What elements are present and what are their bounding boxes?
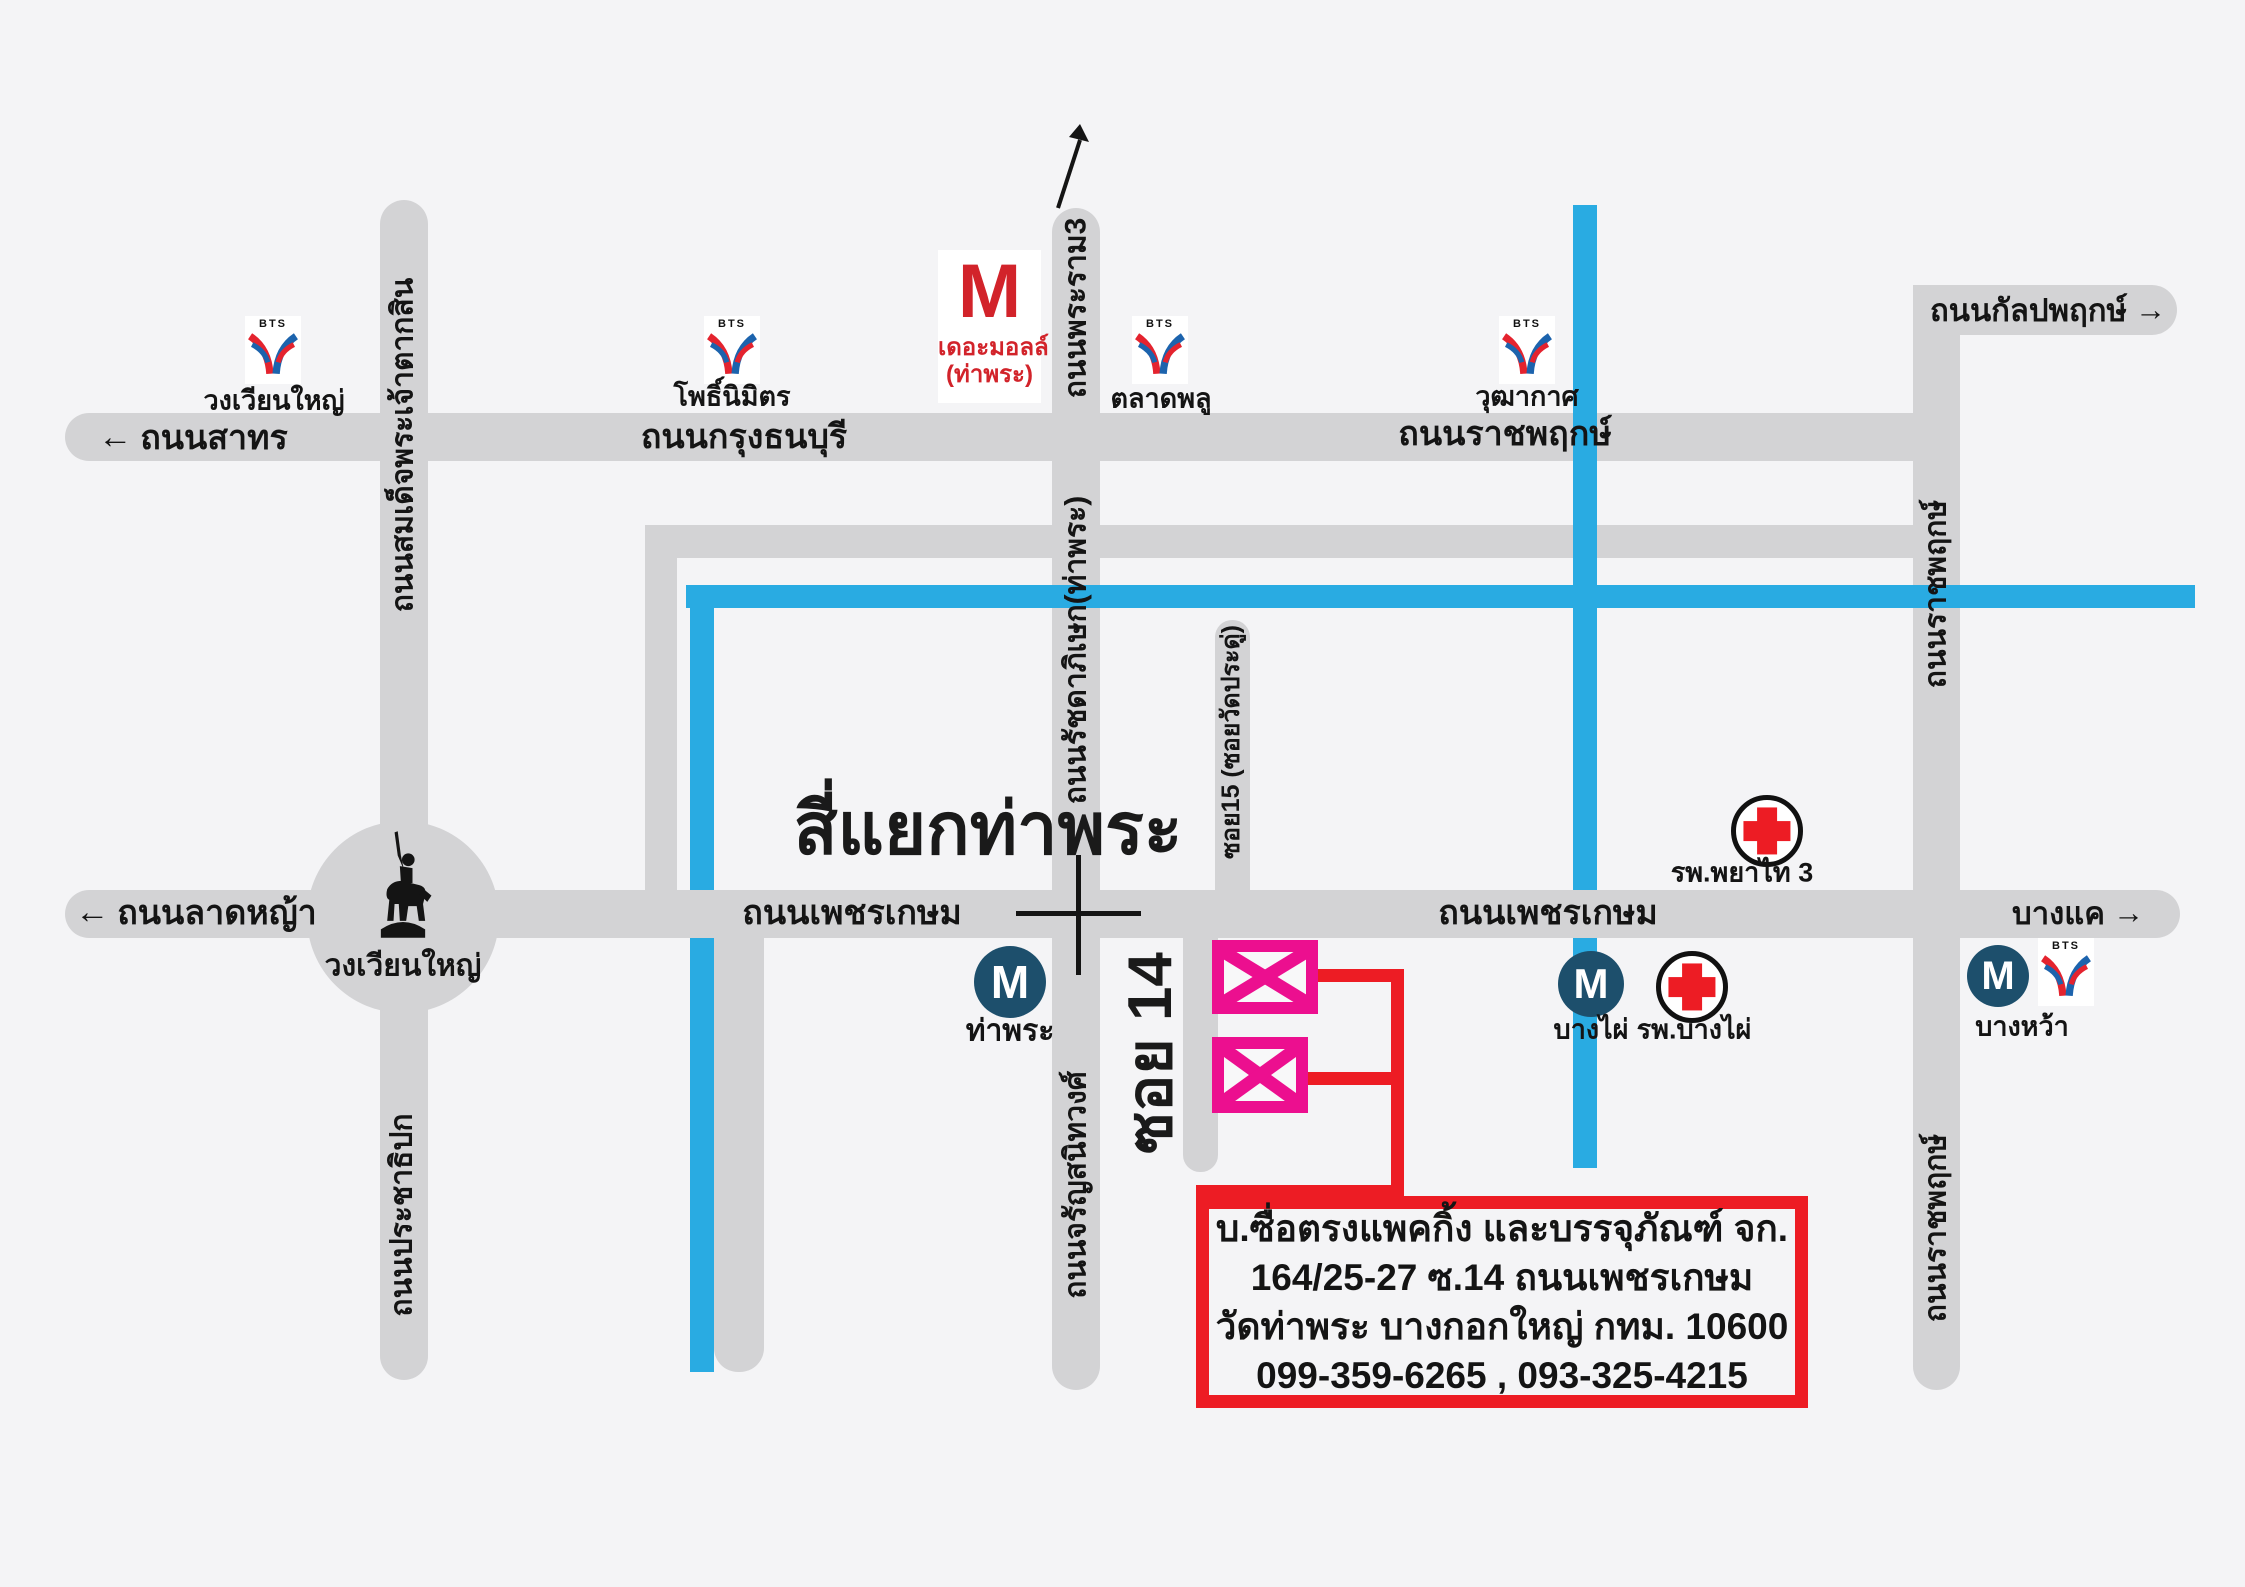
road-branch-horizontal: [645, 525, 1913, 558]
bts-wordmark: BTS: [1513, 318, 1541, 331]
road-label-bang-khae: บางแค →: [2012, 888, 2144, 938]
road-label-text: ถนนเพชรเกษม: [1438, 885, 1657, 939]
road-label-phetkasem-right: ถนนเพชรเกษม: [1438, 885, 1657, 939]
intersection-title-text: สี่แยกท่าพระ: [794, 771, 1183, 886]
road-label-prachathipok: ถนนประชาธิปก: [379, 1113, 426, 1316]
location-marker-icon: [1212, 940, 1318, 1014]
bts-wordmark: BTS: [718, 318, 746, 331]
bts-wordmark: BTS: [1146, 318, 1174, 331]
bts-logo-icon: BTS: [2038, 938, 2094, 1006]
intersection-title: สี่แยกท่าพระ: [794, 771, 1183, 886]
station-label-bts-talat-phlu: ตลาดพลู: [1110, 377, 1211, 420]
station-label-bts-wongwian-yai: วงเวียนใหญ่: [204, 379, 345, 422]
station-label-bts-wutthakat: วุฒากาศ: [1475, 375, 1578, 418]
company-name: บ.ซื่อตรงแพคกิ้ง และบรรจุภัณฑ์ จก.: [1209, 1204, 1795, 1253]
connector-line: [1391, 969, 1404, 1198]
red-cross-icon: [1668, 977, 1715, 997]
road-label-ratchaphruek-lower: ถนนราชพฤกษ์: [1913, 1134, 1960, 1322]
bts-wordmark: BTS: [259, 318, 287, 331]
company-address-line1: 164/25-27 ซ.14 ถนนเพชรเกษม: [1209, 1253, 1795, 1302]
bangkok-thaphra-location-map: ← ถนนสาทร ถนนกรุงธนบุรี ถนนราชพฤกษ์ ถนนก…: [0, 0, 2245, 1587]
bts-logo-icon: BTS: [1132, 316, 1188, 384]
road-label-soi15: ซอย15 (ซอยวัดประดู่): [1211, 625, 1251, 859]
mall-name: เดอะมอลล์: [938, 334, 1041, 361]
wongwian-yai-label: วงเวียนใหญ่: [325, 943, 482, 990]
road-label-phetkasem-left: ถนนเพชรเกษม: [742, 885, 961, 939]
company-phone-numbers: 099-359-6265 , 093-325-4215: [1209, 1351, 1795, 1400]
location-marker-icon: [1212, 1037, 1308, 1113]
station-label-bang-wa: บางหว้า: [1975, 1005, 2069, 1048]
road-label-ratchaphruek-upper: ถนนราชพฤกษ์: [1913, 500, 1960, 688]
mall-branch: (ท่าพระ): [938, 361, 1041, 388]
connector-line: [1302, 1072, 1404, 1085]
mall-m-icon: M: [938, 250, 1041, 334]
canal-horizontal: [686, 585, 2195, 608]
arrow-right-icon: →: [2135, 292, 2166, 328]
road-label-rama3: ถนนพระราม3: [1053, 218, 1100, 399]
road-label-text: บางแค: [2012, 888, 2105, 938]
taksin-monument-icon: [366, 826, 440, 942]
red-cross-icon: [1743, 821, 1790, 841]
road-south-stub: [714, 937, 764, 1372]
mrt-logo-icon: M: [1967, 945, 2029, 1007]
label-phyathai3-hospital: รพ.พยาไท 3: [1671, 851, 1813, 894]
station-label-mrt-tha-phra: ท่าพระ: [966, 1008, 1055, 1055]
crosshair-icon: [1076, 855, 1081, 975]
road-label-text: ถนนเพชรเกษม: [742, 885, 961, 939]
road-label-lat-ya: ← ถนนลาดหญ้า: [75, 885, 317, 939]
road-label-text: ถนนลาดหญ้า: [117, 885, 317, 939]
road-branch-vertical: [645, 525, 677, 893]
the-mall-thaphra: M เดอะมอลล์ (ท่าพระ): [938, 250, 1041, 403]
canal-vertical-left: [690, 585, 714, 1372]
arrow-left-icon: ←: [75, 893, 109, 932]
road-label-soi14: ซอย 14: [1101, 952, 1199, 1154]
road-label-kanlapaphruek: ถนนกัลปพฤกษ์ →: [1930, 285, 2166, 335]
bts-wordmark: BTS: [2052, 940, 2080, 953]
road-label-taksin: ถนนสมเด็จพระเจ้าตากสิน: [380, 278, 427, 613]
station-label-mrt-bang-phai: บางไผ่: [1554, 1008, 1629, 1051]
road-label-charansanitwong: ถนนจรัญสนิทวงศ์: [1053, 1071, 1100, 1299]
road-label-ratchadaphisek: ถนนรัชดาภิเษก(ท่าพระ): [1053, 496, 1100, 805]
road-label-text: ถนนกัลปพฤกษ์: [1930, 285, 2127, 335]
company-info-box: บ.ซื่อตรงแพคกิ้ง และบรรจุภัณฑ์ จก. 164/2…: [1196, 1196, 1808, 1408]
company-address-line2: วัดท่าพระ บางกอกใหญ่ กทม. 10600: [1209, 1302, 1795, 1351]
bts-logo-icon: BTS: [245, 316, 301, 384]
arrow-right-icon: →: [2113, 895, 2144, 931]
arrow-left-icon: ←: [98, 418, 132, 457]
station-label-bts-pho-nimit: โพธิ์นิมิตร: [673, 375, 790, 418]
north-arrow-icon: [1048, 122, 1094, 214]
label-bang-phai-hospital: รพ.บางไผ่: [1637, 1008, 1752, 1051]
